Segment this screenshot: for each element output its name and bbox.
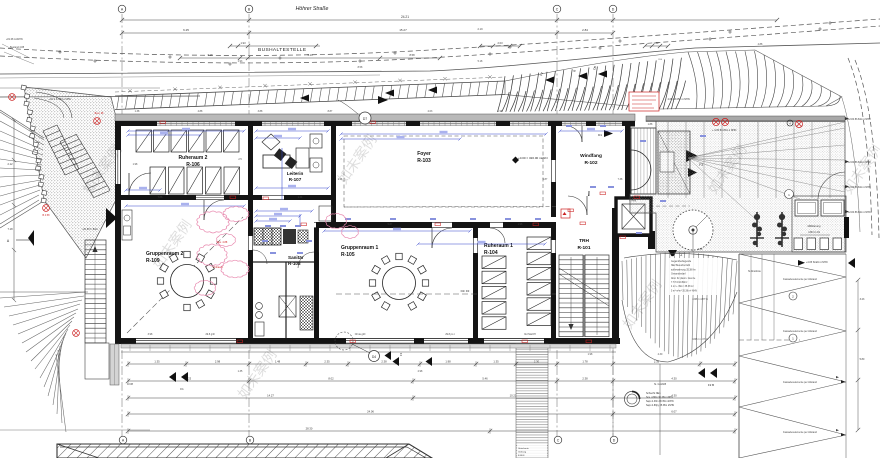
svg-text:2.88: 2.88 (698, 248, 703, 251)
svg-text:2.98: 2.98 (418, 370, 423, 373)
svg-text:bld SksOH: bld SksOH (524, 333, 536, 336)
svg-text:R-101: R-101 (577, 245, 590, 251)
svg-text:Fassadenelemente per Abstand: Fassadenelemente per Abstand (783, 330, 817, 333)
svg-text:4.30: 4.30 (671, 376, 677, 380)
svg-text:Möblierung: Möblierung (808, 224, 821, 228)
svg-text:1.78: 1.78 (582, 359, 588, 363)
svg-text:14.27: 14.27 (267, 393, 274, 397)
svg-text:NE2 Besucherzahl: NE2 Besucherzahl (671, 264, 691, 267)
svg-text:D2/ D3: D2/ D3 (461, 289, 470, 293)
svg-text:5.80: 5.80 (860, 358, 865, 361)
svg-text:R-103: R-103 (417, 158, 431, 164)
svg-text:1.93: 1.93 (238, 60, 243, 63)
svg-text:Best. 38: Best. 38 (95, 112, 104, 115)
svg-text:+ 4.05 83.05m ü NHN: + 4.05 83.05m ü NHN (712, 129, 736, 132)
svg-text:F2 B: F2 B (708, 383, 714, 387)
svg-text:Foyer: Foyer (417, 151, 431, 157)
svg-text:1.93: 1.93 (240, 41, 246, 45)
svg-text:St.Drainlinie: St.Drainlinie (748, 270, 762, 273)
svg-text:Unterkante: Unterkante (518, 447, 529, 450)
svg-text:2.19: 2.19 (477, 27, 483, 31)
svg-text:1.88: 1.88 (648, 123, 653, 126)
svg-text:1.38: 1.38 (135, 110, 140, 113)
svg-text:B 4.58: B 4.58 (43, 214, 51, 217)
svg-text:1.98: 1.98 (588, 353, 593, 356)
svg-text:Sanitär: Sanitär (288, 255, 304, 260)
svg-text:+2.84 83.84m ü NHN: +2.84 83.84m ü NHN (848, 211, 871, 214)
svg-text:5.87: 5.87 (388, 223, 393, 226)
svg-text:4.30: 4.30 (671, 393, 677, 397)
svg-text:1.98: 1.98 (518, 223, 523, 226)
svg-text:D1: D1 (598, 133, 602, 137)
svg-text:Leiterin: Leiterin (287, 171, 304, 176)
svg-text:Rev. 4.88: Rev. 4.88 (217, 241, 228, 244)
svg-text:+81.4 lt. 98m ü NHN: +81.4 lt. 98m ü NHN (49, 98, 71, 101)
svg-text:5.87: 5.87 (543, 178, 548, 181)
svg-text:+81.88 lt. Bslw: +81.88 lt. Bslw (82, 228, 98, 231)
svg-text:1.35: 1.35 (238, 370, 243, 373)
svg-text:D4: D4 (372, 355, 376, 359)
svg-text:BUSHALTESTELLE: BUSHALTESTELLE (258, 47, 306, 53)
svg-text:1.98: 1.98 (133, 163, 138, 166)
svg-text:5.18: 5.18 (478, 60, 483, 63)
svg-text:R-102: R-102 (584, 160, 597, 166)
svg-text:1.35: 1.35 (154, 359, 160, 363)
svg-text:15.27: 15.27 (399, 28, 407, 32)
svg-text:R-106: R-106 (186, 162, 200, 168)
svg-text:4.30: 4.30 (658, 353, 663, 356)
svg-text:+0.00 = 320.00 müNN: +0.00 = 320.00 müNN (518, 156, 548, 160)
svg-text:Oil às grill: Oil às grill (355, 333, 366, 336)
svg-text:2.38: 2.38 (582, 376, 588, 380)
svg-text:2.12: 2.12 (7, 162, 13, 166)
svg-text:6.25: 6.25 (183, 28, 189, 32)
svg-text:Umbau lt.: Umbau lt. (213, 266, 224, 269)
svg-text:+81.08 müNHN: +81.08 müNHN (6, 38, 23, 41)
svg-text:Schacht NE1: Schacht NE1 (646, 392, 661, 395)
svg-text:29.8 grill: 29.8 grill (205, 333, 215, 336)
svg-text:12.88: 12.88 (127, 383, 134, 386)
svg-text:1.35: 1.35 (493, 359, 499, 363)
svg-text:+4.05 St.Elln ü NHN: +4.05 St.Elln ü NHN (806, 261, 828, 264)
svg-text:Fassadenelemente per Abstand: Fassadenelemente per Abstand (783, 431, 817, 434)
svg-text:8.58: 8.58 (358, 66, 363, 69)
svg-text:D7: D7 (363, 117, 367, 121)
svg-text:St. Grstb88: St. Grstb88 (654, 383, 667, 386)
svg-text:1.98: 1.98 (498, 110, 503, 113)
svg-text:7.77m³/10.80m³: 7.77m³/10.80m³ (671, 281, 687, 284)
svg-text:5.10: 5.10 (307, 53, 313, 57)
svg-text:R-107: R-107 (289, 177, 302, 182)
svg-text:R-105: R-105 (341, 252, 355, 258)
svg-text:B 88.8: B 88.8 (518, 455, 525, 457)
svg-text:8.58: 8.58 (409, 53, 415, 57)
svg-text:4.88 m 4.87 %: 4.88 m 4.87 % (692, 298, 708, 301)
svg-text:7.88: 7.88 (158, 196, 163, 199)
svg-text:4.88: 4.88 (758, 43, 763, 46)
svg-text:Fassadenelemente per Abstand: Fassadenelemente per Abstand (783, 278, 817, 281)
svg-text:2.38: 2.38 (381, 359, 387, 363)
svg-text:3.23: 3.23 (860, 298, 865, 301)
svg-text:3.98: 3.98 (148, 333, 153, 336)
svg-text:Fassadenelemente per Abstand: Fassadenelemente per Abstand (783, 381, 817, 384)
svg-text:1.02: 1.02 (653, 41, 659, 45)
svg-text:28.30: 28.30 (306, 426, 313, 430)
svg-text:8.02: 8.02 (328, 376, 334, 380)
svg-text:1.98: 1.98 (445, 359, 451, 363)
svg-text:F1: F1 (399, 352, 403, 356)
svg-text:4.88 m 4.37 %: 4.88 m 4.37 % (692, 338, 708, 341)
svg-text:2.98: 2.98 (215, 359, 221, 363)
svg-text:4 m² + 39m / 35.38 m²: 4 m² + 39m / 35.38 m² (671, 285, 694, 288)
svg-text:3.18: 3.18 (207, 53, 213, 57)
svg-text:Windfang: Windfang (580, 153, 602, 159)
svg-text:7.18: 7.18 (7, 227, 13, 231)
svg-text:F1: F1 (180, 387, 184, 391)
svg-text:6.07: 6.07 (671, 409, 677, 413)
svg-text:aufbewahrung 35.38 lfm: aufbewahrung 35.38 lfm (671, 268, 696, 271)
svg-text:R-108: R-108 (288, 261, 301, 266)
svg-text:R-104: R-104 (484, 250, 498, 256)
svg-text:10.21: 10.21 (510, 393, 517, 397)
svg-text:29.8 po t: 29.8 po t (445, 333, 455, 336)
svg-text:+2.84 83.84m ü NHN: +2.84 83.84m ü NHN (848, 118, 871, 121)
svg-text:8.87: 8.87 (328, 110, 333, 113)
svg-text:Gegenüberliegende: Gegenüberliegende (671, 260, 692, 263)
svg-text:24.21: 24.21 (401, 15, 409, 19)
svg-text:5.46: 5.46 (482, 376, 488, 380)
svg-text:2.84: 2.84 (582, 28, 588, 32)
svg-text:7.38: 7.38 (618, 178, 623, 181)
svg-text:Gehweg: Gehweg (518, 452, 527, 454)
svg-text:2.38: 2.38 (654, 359, 660, 363)
svg-text:TRH: TRH (579, 238, 589, 244)
svg-text:2.30: 2.30 (534, 359, 540, 363)
svg-text:Höhrer Straße: Höhrer Straße (296, 6, 329, 12)
svg-text:Abst. für planm. Grenze: Abst. für planm. Grenze (671, 277, 696, 280)
svg-text:4.86 lt 1.81: 4.86 lt 1.81 (808, 231, 820, 234)
svg-text:2.03: 2.03 (497, 41, 503, 45)
svg-text:4.88: 4.88 (198, 110, 203, 113)
svg-text:2.03: 2.03 (428, 110, 433, 113)
svg-text:Gruppenraum 1: Gruppenraum 1 (341, 245, 378, 251)
svg-text:3.88: 3.88 (258, 110, 263, 113)
svg-text:Sapo 4.88py 35.38m üNHN: Sapo 4.88py 35.38m üNHN (646, 405, 674, 407)
svg-text:24.06: 24.06 (367, 409, 374, 413)
svg-text:5 m² m²m² 35.38 m² NHN: 5 m² m²m² 35.38 m² NHN (671, 289, 697, 292)
svg-text:2.35: 2.35 (324, 359, 330, 363)
svg-text:Gesamtbedarf: Gesamtbedarf (671, 273, 686, 276)
svg-text:1.44: 1.44 (298, 196, 303, 199)
svg-text:Ruheraum 2: Ruheraum 2 (179, 155, 208, 161)
svg-text:· 4.05 83.05m ü NHN: · 4.05 83.05m ü NHN (666, 98, 690, 101)
svg-text:Sapo 4.38m 38.35m üNHN: Sapo 4.38m 38.35m üNHN (646, 401, 674, 403)
